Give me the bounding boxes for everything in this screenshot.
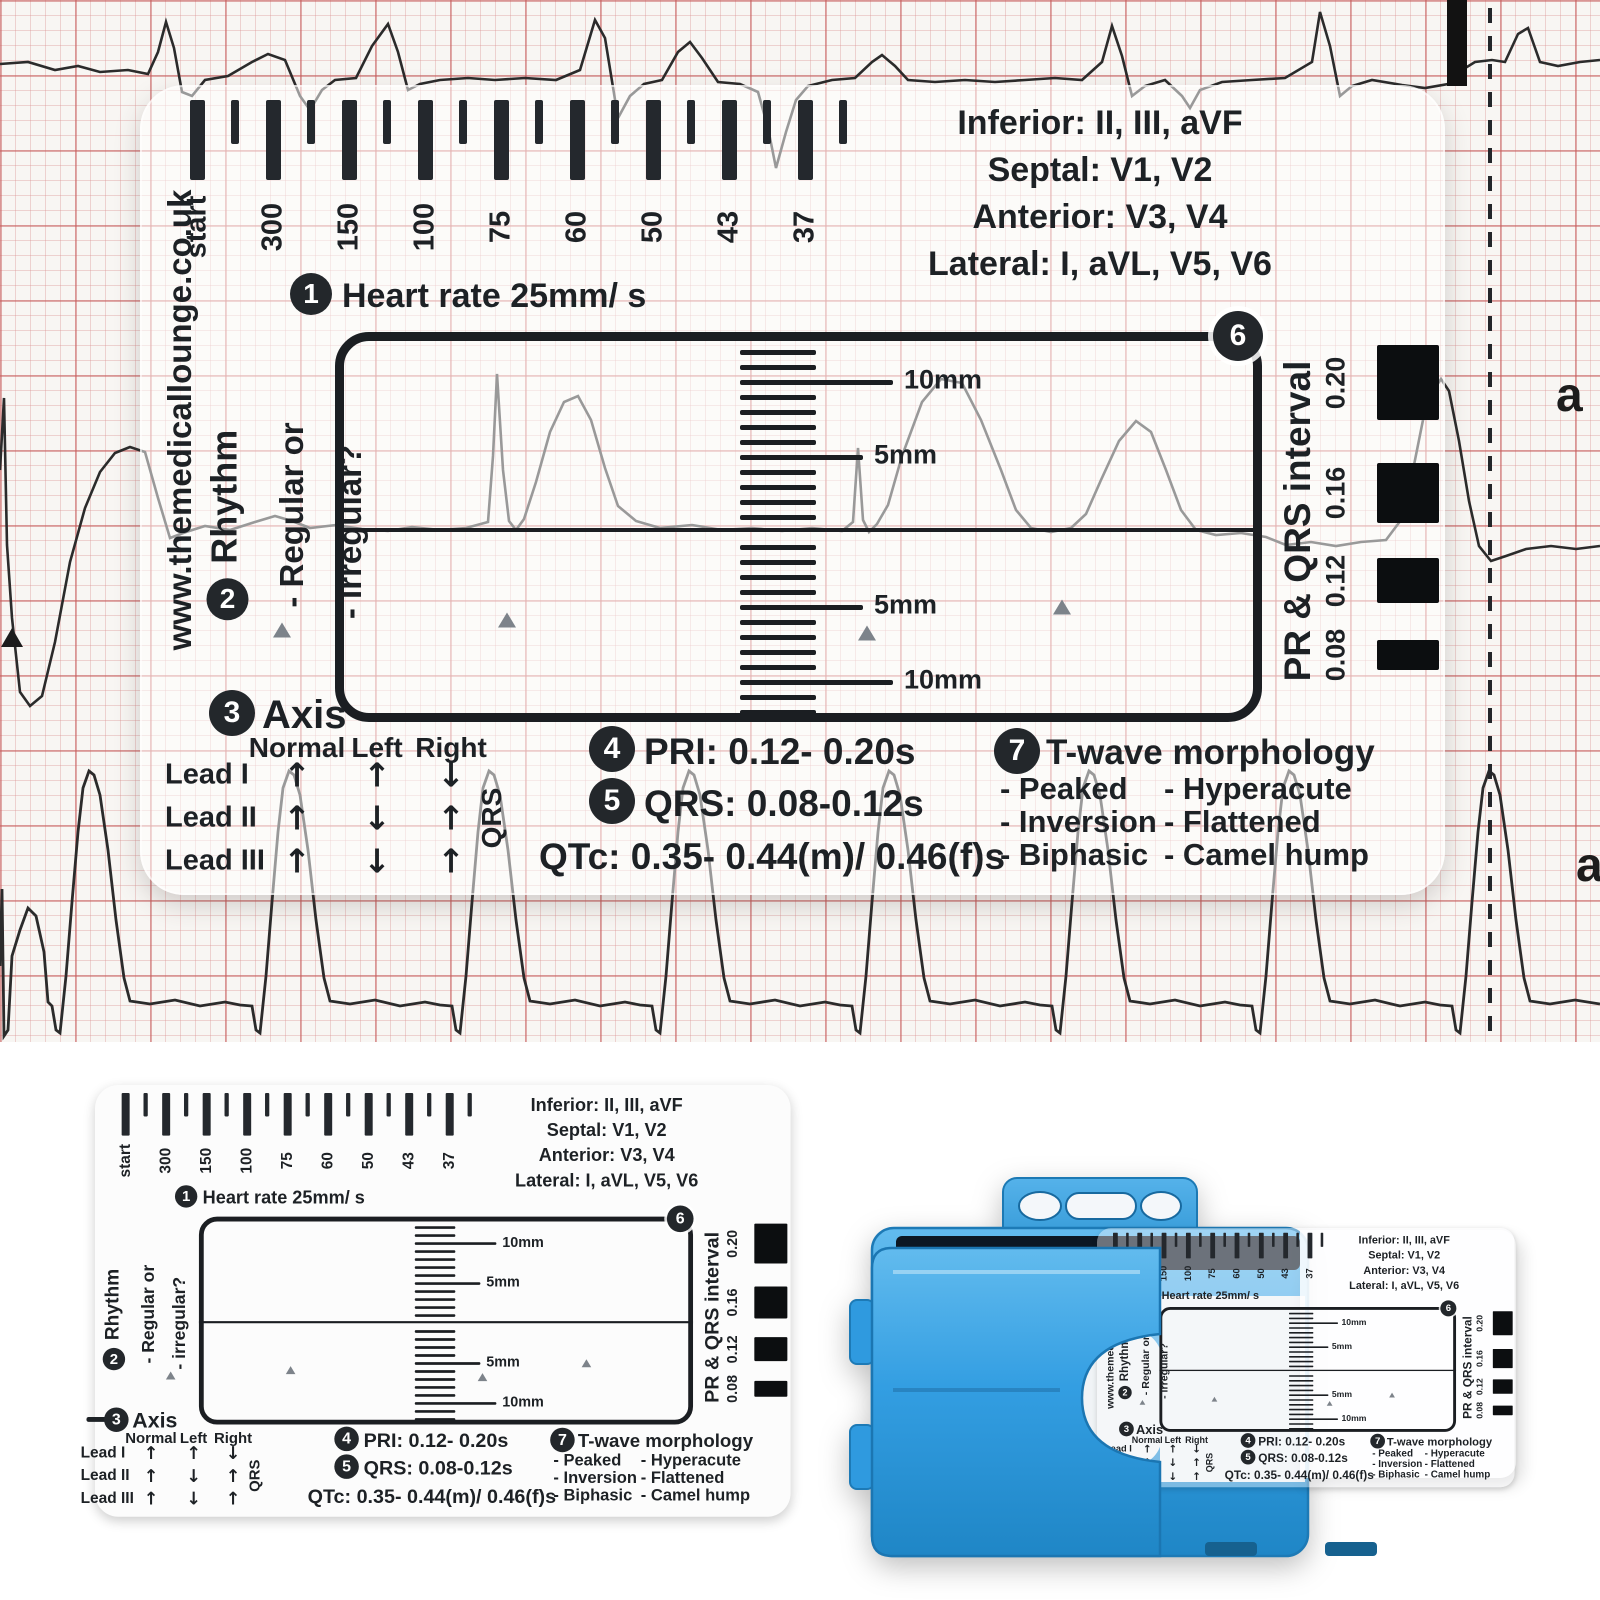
- mm-ruler-tick: [740, 605, 863, 610]
- marker-triangle: [273, 623, 291, 638]
- rhythm-option-regular: - Regular or: [273, 422, 311, 607]
- hr-scale-label: 75: [1207, 1268, 1218, 1278]
- mm-ruler-tick: [415, 1266, 456, 1269]
- mm-ruler-tick: [740, 455, 863, 460]
- rhythm-option-regular: - Regular or: [1140, 1336, 1152, 1395]
- mm-ruler-tick: [415, 1370, 456, 1373]
- step-7-badge: 7: [1370, 1434, 1385, 1449]
- mm-ruler-tick: [740, 440, 816, 445]
- hr-scale-label: 60: [1232, 1268, 1243, 1278]
- axis-lead-label: Lead II: [1105, 1457, 1134, 1468]
- twave-item: - Hyperacute: [1164, 771, 1352, 807]
- axis-arrow-down: ↓: [186, 1488, 201, 1509]
- axis-arrow-up: ↑: [144, 1488, 159, 1509]
- ruler-tick-minor: [1126, 1233, 1129, 1247]
- pr-qrs-scale-title: PR & QRS interval: [701, 1232, 723, 1403]
- hr-scale-label: 37: [1305, 1268, 1316, 1278]
- twave-item: - Inversion: [553, 1468, 637, 1487]
- qtc-label: QTc: 0.35- 0.44(m)/ 0.46(f)s: [539, 836, 1005, 878]
- rhythm-label: Rhythm: [204, 430, 245, 564]
- region-line: Anterior: V3, V4: [1321, 1263, 1487, 1278]
- axis-arrow-down: ↓: [437, 756, 465, 795]
- website-label: www.themedicallounge.co.uk: [1104, 1261, 1116, 1408]
- mm-ruler-tick: [415, 1226, 456, 1229]
- mm-ruler-tick: [1289, 1351, 1313, 1353]
- hr-scale-label: 37: [789, 211, 822, 243]
- rhythm-option-regular: - Regular or: [138, 1265, 158, 1364]
- mm-ruler-tick: [740, 545, 816, 550]
- ruler-tick-major: [122, 1093, 130, 1136]
- mm-ruler-tick: [415, 1338, 456, 1341]
- region-leads-list: Inferior: II, III, aVF Septal: V1, V2 An…: [840, 100, 1360, 288]
- rhythm-step: 2 Rhythm: [204, 430, 249, 620]
- axis-col-right: Right: [214, 1430, 252, 1447]
- mm-ruler-tick: [740, 650, 816, 655]
- hr-scale-label: 75: [279, 1152, 297, 1169]
- step-5-badge: 5: [1241, 1450, 1256, 1465]
- mm-ruler-tick: [740, 620, 816, 625]
- step-6-badge: 6: [667, 1205, 694, 1232]
- ruler-tick-major: [342, 100, 357, 180]
- axis-arrow-down: ↓: [363, 842, 391, 881]
- mm-ruler-tick: [740, 665, 816, 670]
- mm-ruler-tick: [415, 1410, 456, 1413]
- mm-ruler-tick: [740, 560, 816, 565]
- marker-triangle: [166, 1371, 176, 1379]
- mm-label: 10mm: [502, 1234, 544, 1251]
- mm-ruler-tick: [1289, 1385, 1313, 1387]
- twave-item: - Biphasic: [1372, 1469, 1419, 1481]
- step-5-badge: 5: [334, 1454, 359, 1479]
- twave-item: - Biphasic: [553, 1486, 632, 1505]
- hr-scale-label: 50: [360, 1152, 378, 1169]
- pr-qrs-mark-block: [754, 1224, 787, 1264]
- axis-lead-label: Lead I: [165, 759, 249, 792]
- mm-ruler-tick: [1289, 1332, 1313, 1334]
- marker-triangle: [498, 613, 516, 628]
- axis-arrow-up: ↑: [1143, 1456, 1152, 1468]
- ruler-tick-minor: [459, 100, 467, 144]
- qrs-label: QRS: 0.08-0.12s: [1258, 1451, 1348, 1464]
- mm-ruler-tick: [1289, 1404, 1313, 1406]
- twave-item: - Flattened: [641, 1468, 725, 1487]
- mm-ruler-tick: [415, 1362, 481, 1365]
- step-2-badge: 2: [103, 1348, 125, 1370]
- ruler-tick-minor: [1175, 1233, 1178, 1247]
- ruler-tick-major: [365, 1093, 373, 1136]
- axis-arrow-up: ↑: [437, 799, 465, 838]
- step-5-badge: 5: [589, 778, 635, 824]
- ruler-tick-minor: [387, 1093, 391, 1116]
- pr-qrs-mark-block: [1493, 1349, 1513, 1368]
- step-2-badge: 2: [207, 578, 249, 620]
- hr-scale-label: 43: [713, 211, 746, 243]
- ruler-tick-minor: [307, 100, 315, 144]
- twave-item: - Peaked: [553, 1451, 621, 1470]
- mm-ruler-tick: [1289, 1418, 1338, 1420]
- hr-scale-label: 43: [1280, 1268, 1291, 1278]
- mm-label: 10mm: [1341, 1317, 1366, 1327]
- mm-ruler-tick: [740, 485, 816, 490]
- mm-ruler-tick: [415, 1274, 456, 1277]
- region-line: Anterior: V3, V4: [840, 194, 1360, 241]
- mm-ruler-tick: [740, 365, 816, 370]
- hr-scale-label: 50: [1256, 1268, 1267, 1278]
- twave-item: - Flattened: [1164, 804, 1321, 840]
- mm-ruler-tick: [1289, 1380, 1313, 1382]
- axis-arrow-up: ↑: [283, 799, 311, 838]
- axis-col-normal: Normal: [125, 1430, 176, 1447]
- step-4-badge: 4: [334, 1427, 359, 1452]
- ecg-ruler-card: start3001501007560504337 www.themedicall…: [95, 1085, 791, 1517]
- mm-ruler-tick: [1289, 1361, 1313, 1363]
- axis-arrow-up: ↑: [283, 756, 311, 795]
- mm-ruler-tick: [415, 1282, 481, 1285]
- pr-qrs-scale-title: PR & QRS interval: [1277, 361, 1319, 682]
- hr-scale-label: 60: [561, 211, 594, 243]
- mm-ruler-tick: [740, 695, 816, 700]
- mm-ruler-tick: [740, 590, 816, 595]
- region-line: Inferior: II, III, aVF: [468, 1093, 745, 1118]
- step-3-badge: 3: [209, 690, 255, 736]
- ruler-tick-minor: [1248, 1233, 1251, 1247]
- qtc-label: QTc: 0.35- 0.44(m)/ 0.46(f)s: [308, 1485, 556, 1507]
- mm-ruler-tick: [740, 515, 816, 520]
- mm-ruler-tick: [415, 1250, 456, 1253]
- mm-ruler-tick: [415, 1314, 456, 1317]
- mm-ruler-tick: [1289, 1337, 1313, 1339]
- hr-scale-label: 300: [257, 203, 290, 251]
- website-label: www.themedicallounge.co.uk: [161, 190, 199, 651]
- mm-ruler-tick: [740, 710, 816, 715]
- axis-arrow-up: ↑: [1192, 1456, 1201, 1468]
- pr-qrs-mark-block: [754, 1381, 787, 1397]
- ruler-tick-minor: [144, 1093, 148, 1116]
- pr-qrs-mark-block: [1493, 1379, 1513, 1393]
- hr-scale-label: 75: [485, 211, 518, 243]
- ruler-tick-minor: [225, 1093, 229, 1116]
- ruler-tick-major: [798, 100, 813, 180]
- step-1-badge: 1: [1145, 1288, 1158, 1301]
- pr-qrs-mark-block: [1377, 558, 1439, 603]
- ruler-tick-minor: [1223, 1233, 1226, 1247]
- region-line: Septal: V1, V2: [468, 1118, 745, 1143]
- hr-scale-label: 300: [157, 1148, 175, 1174]
- calibration-mark: [1447, 0, 1467, 86]
- hr-scale-label: 100: [409, 203, 442, 251]
- hr-scale-label: start: [117, 1144, 135, 1178]
- mm-ruler-tick: [415, 1306, 456, 1309]
- ecg-ruler-card: start3001501007560504337 www.themedicall…: [1097, 1228, 1515, 1487]
- mm-ruler-tick: [740, 395, 816, 400]
- mm-ruler-tick: [740, 410, 816, 415]
- mm-label: 5mm: [874, 440, 937, 471]
- twave-item: - Hyperacute: [641, 1451, 741, 1470]
- twave-item: - Inversion: [1000, 804, 1157, 840]
- mm-ruler-tick: [740, 680, 893, 685]
- measure-window: [335, 332, 1262, 722]
- ruler-tick-major: [722, 100, 737, 180]
- step-3-badge: 3: [104, 1407, 129, 1432]
- hr-scale-label: 100: [1183, 1266, 1194, 1281]
- hr-scale-label: 300: [1134, 1266, 1145, 1281]
- ruler-card-in-holder: start3001501007560504337 www.themedicall…: [1097, 1228, 1600, 1600]
- axis-arrow-up: ↑: [1143, 1470, 1152, 1482]
- ruler-tick-major: [243, 1093, 251, 1136]
- axis-arrow-down: ↓: [1192, 1443, 1201, 1455]
- mm-label: 5mm: [486, 1354, 520, 1371]
- mm-ruler-tick: [415, 1402, 497, 1405]
- axis-arrow-up: ↑: [1168, 1443, 1177, 1455]
- marker-triangle: [1327, 1401, 1333, 1406]
- mm-ruler-tick: [1289, 1428, 1313, 1430]
- mm-label: 5mm: [874, 590, 937, 621]
- axis-arrow-down: ↓: [186, 1465, 201, 1486]
- marker-triangle: [1389, 1393, 1395, 1398]
- region-leads-list: Inferior: II, III, aVF Septal: V1, V2 An…: [468, 1093, 745, 1193]
- twave-item: - Camel hump: [1425, 1469, 1491, 1481]
- twave-item: - Camel hump: [641, 1486, 750, 1505]
- ruler-tick-minor: [1199, 1233, 1202, 1247]
- axis-qrs-label: QRS: [476, 788, 508, 849]
- mm-ruler-tick: [1289, 1390, 1313, 1392]
- pr-qrs-mark-label: 0.12: [1475, 1378, 1485, 1395]
- marker-triangle: [478, 1373, 488, 1381]
- hr-scale-label: 150: [198, 1148, 216, 1174]
- pr-qrs-mark-label: 0.08: [1321, 629, 1352, 682]
- ruler-tick-major: [1308, 1233, 1313, 1259]
- rhythm-step: 2 Rhythm: [101, 1269, 125, 1371]
- hr-scale-label: 37: [441, 1152, 459, 1169]
- marker-triangle: [858, 626, 876, 641]
- pr-qrs-mark-block: [754, 1286, 787, 1318]
- baseline-rule: [335, 528, 1262, 532]
- mm-ruler-tick: [415, 1418, 456, 1421]
- axis-arrow-up: ↑: [437, 842, 465, 881]
- mm-label: 10mm: [502, 1394, 544, 1411]
- heart-rate-label: Heart rate 25mm/ s: [203, 1187, 365, 1208]
- ruler-tick-major: [570, 100, 585, 180]
- rhythm-label: Rhythm: [1117, 1338, 1130, 1381]
- mm-ruler-tick: [1289, 1322, 1338, 1324]
- ruler-tick-minor: [687, 100, 695, 144]
- ruler-tick-major: [494, 100, 509, 180]
- axis-col-normal: Normal: [249, 732, 345, 764]
- region-line: Septal: V1, V2: [840, 147, 1360, 194]
- region-line: Anterior: V3, V4: [468, 1143, 745, 1168]
- pr-qrs-mark-label: 0.12: [1321, 554, 1352, 607]
- twave-title: T-wave morphology: [1387, 1435, 1492, 1448]
- step-7-badge: 7: [550, 1428, 575, 1453]
- mm-ruler-tick: [740, 470, 816, 475]
- ruler-tick-major: [646, 100, 661, 180]
- region-line: Lateral: I, aVL, V5, V6: [1321, 1278, 1487, 1293]
- step-1-badge: 1: [290, 273, 332, 315]
- qrs-label: QRS: 0.08-0.12s: [644, 783, 924, 825]
- axis-label: Axis: [262, 693, 347, 738]
- axis-qrs-label: QRS: [1205, 1453, 1215, 1472]
- ruler-tick-major: [1259, 1233, 1264, 1259]
- mm-ruler-tick: [1289, 1414, 1313, 1416]
- pr-qrs-mark-label: 0.20: [1321, 356, 1352, 409]
- pr-qrs-mark-label: 0.16: [724, 1288, 741, 1316]
- mm-ruler-tick: [415, 1242, 497, 1245]
- ruler-tick-minor: [1296, 1233, 1299, 1247]
- axis-label: Axis: [132, 1409, 177, 1433]
- ruler-tick-major: [324, 1093, 332, 1136]
- axis-col-right: Right: [1185, 1435, 1208, 1445]
- twave-item: - Peaked: [1000, 771, 1128, 807]
- pr-qrs-mark-block: [1493, 1406, 1513, 1416]
- ruler-tick-minor: [611, 100, 619, 144]
- mm-ruler-tick: [415, 1258, 456, 1261]
- axis-lead-label: Lead III: [165, 845, 265, 878]
- twave-item: - Biphasic: [1000, 837, 1148, 873]
- axis-lead-label: Lead I: [1105, 1444, 1132, 1455]
- rhythm-step: 2 Rhythm: [1117, 1338, 1131, 1399]
- ruler-tick-minor: [231, 100, 239, 144]
- axis-label: Axis: [1136, 1423, 1163, 1437]
- mm-ruler-tick: [415, 1234, 456, 1237]
- mm-label: 10mm: [1341, 1413, 1366, 1423]
- heart-rate-label: Heart rate 25mm/ s: [342, 277, 646, 316]
- axis-lead-label: Lead III: [1105, 1471, 1137, 1482]
- axis-arrow-down: ↓: [1168, 1456, 1177, 1468]
- ruler-tick-minor: [346, 1093, 350, 1116]
- baseline-rule: [199, 1321, 693, 1323]
- step-4-badge: 4: [1241, 1433, 1256, 1448]
- pr-qrs-mark-label: 0.16: [1475, 1350, 1485, 1367]
- mm-ruler-tick: [740, 635, 816, 640]
- pr-qrs-mark-label: 0.12: [724, 1335, 741, 1363]
- ruler-tick-major: [266, 100, 281, 180]
- ruler-tick-minor: [1150, 1233, 1153, 1247]
- axis-col-normal: Normal: [1132, 1435, 1163, 1445]
- mm-ruler-tick: [740, 350, 816, 355]
- axis-arrow-up: ↑: [363, 756, 391, 795]
- mm-ruler-tick: [1289, 1394, 1328, 1396]
- mm-ruler-tick: [415, 1386, 456, 1389]
- step-7-badge: 7: [994, 728, 1040, 774]
- ruler-tick-major: [284, 1093, 292, 1136]
- region-line: Septal: V1, V2: [1321, 1248, 1487, 1263]
- ruler-tick-major: [1113, 1233, 1118, 1259]
- baseline-rule: [1159, 1370, 1456, 1371]
- axis-col-left: Left: [351, 732, 402, 764]
- mm-ruler-tick: [415, 1394, 456, 1397]
- product-image: a a start3001501007560504337 www.themedi…: [0, 0, 1600, 1600]
- mm-label: 5mm: [486, 1274, 520, 1291]
- mm-ruler-tick: [740, 425, 816, 430]
- paper-triangle-marker: [1, 628, 23, 647]
- mm-label: 5mm: [1332, 1389, 1352, 1399]
- heart-rate-label: Heart rate 25mm/ s: [1162, 1289, 1259, 1301]
- rhythm-option-irregular: - irregular?: [169, 1277, 189, 1370]
- hr-scale-label: 100: [238, 1148, 256, 1174]
- ecg-paper-photo: a a start3001501007560504337 www.themedi…: [0, 0, 1600, 1042]
- pr-qrs-scale-title: PR & QRS interval: [1461, 1316, 1474, 1419]
- pr-qrs-mark-block: [1377, 463, 1439, 523]
- region-line: Lateral: I, aVL, V5, V6: [468, 1168, 745, 1193]
- mm-ruler-tick: [1289, 1356, 1313, 1358]
- mm-ruler-tick: [1289, 1375, 1313, 1377]
- mm-ruler-tick: [740, 500, 816, 505]
- mm-ruler-tick: [740, 575, 816, 580]
- marker-triangle: [1053, 600, 1071, 615]
- ruler-tick-minor: [1272, 1233, 1275, 1247]
- mm-ruler-tick: [415, 1298, 456, 1301]
- ruler-tick-major: [203, 1093, 211, 1136]
- ruler-tick-minor: [535, 100, 543, 144]
- pr-qrs-mark-block: [1377, 640, 1439, 670]
- step-1-badge: 1: [175, 1185, 197, 1207]
- marker-triangle: [582, 1359, 592, 1367]
- mm-label: 10mm: [904, 665, 982, 696]
- region-leads-list: Inferior: II, III, aVF Septal: V1, V2 An…: [1321, 1233, 1487, 1293]
- ruler-tick-major: [405, 1093, 413, 1136]
- ruler-tick-major: [190, 100, 205, 180]
- ruler-card-on-paper: start3001501007560504337 www.themedicall…: [140, 85, 1445, 895]
- mm-ruler-tick: [1289, 1409, 1313, 1411]
- ruler-tick-major: [1162, 1233, 1167, 1259]
- step-4-badge: 4: [589, 726, 635, 772]
- qrs-label: QRS: 0.08-0.12s: [364, 1457, 513, 1479]
- mm-ruler-tick: [1289, 1327, 1313, 1329]
- region-line: Inferior: II, III, aVF: [840, 100, 1360, 147]
- mm-ruler-tick: [740, 380, 893, 385]
- mm-label: 10mm: [904, 365, 982, 396]
- step-2-badge: 2: [1118, 1386, 1131, 1399]
- axis-col-left: Left: [180, 1430, 207, 1447]
- pr-qrs-mark-label: 0.16: [1321, 467, 1352, 520]
- mm-ruler-tick: [415, 1330, 456, 1333]
- pr-qrs-mark-block: [1493, 1311, 1513, 1335]
- lead-label-a-top: a: [1556, 368, 1583, 423]
- hr-scale-label: 43: [400, 1152, 418, 1169]
- ruler-tick-minor: [427, 1093, 431, 1116]
- ruler-tick-major: [1283, 1233, 1288, 1259]
- mm-ruler-tick: [1289, 1313, 1313, 1315]
- ruler-tick-minor: [763, 100, 771, 144]
- mm-ruler-tick: [1289, 1366, 1313, 1368]
- mm-ruler-tick: [415, 1290, 456, 1293]
- mm-ruler-tick: [415, 1378, 456, 1381]
- ruler-tick-minor: [383, 100, 391, 144]
- ruler-tick-major: [446, 1093, 454, 1136]
- pr-qrs-mark-label: 0.20: [1475, 1315, 1485, 1332]
- axis-arrow-up: ↑: [226, 1488, 241, 1509]
- ruler-tick-minor: [184, 1093, 188, 1116]
- pr-qrs-mark-label: 0.20: [724, 1230, 741, 1258]
- ecg-ruler-card: start3001501007560504337 www.themedicall…: [140, 85, 1445, 895]
- pr-qrs-mark-block: [1377, 345, 1439, 420]
- step-6-badge: 6: [1440, 1300, 1456, 1316]
- lead-label-a-bottom: a: [1576, 838, 1600, 893]
- twave-title: T-wave morphology: [1046, 733, 1375, 773]
- axis-col-left: Left: [1165, 1435, 1181, 1445]
- ruler-tick-major: [1186, 1233, 1191, 1259]
- axis-arrow-up: ↑: [1192, 1470, 1201, 1482]
- mm-ruler-tick: [415, 1346, 456, 1349]
- axis-arrow-up: ↑: [186, 1442, 201, 1463]
- mm-ruler-tick: [1289, 1346, 1328, 1348]
- axis-arrow-down: ↓: [363, 799, 391, 838]
- axis-arrow-down: ↓: [226, 1442, 241, 1463]
- hr-scale-label: 60: [319, 1152, 337, 1169]
- axis-arrow-up: ↑: [144, 1442, 159, 1463]
- region-line: Lateral: I, aVL, V5, V6: [840, 241, 1360, 288]
- pr-qrs-mark-label: 0.08: [1475, 1402, 1485, 1419]
